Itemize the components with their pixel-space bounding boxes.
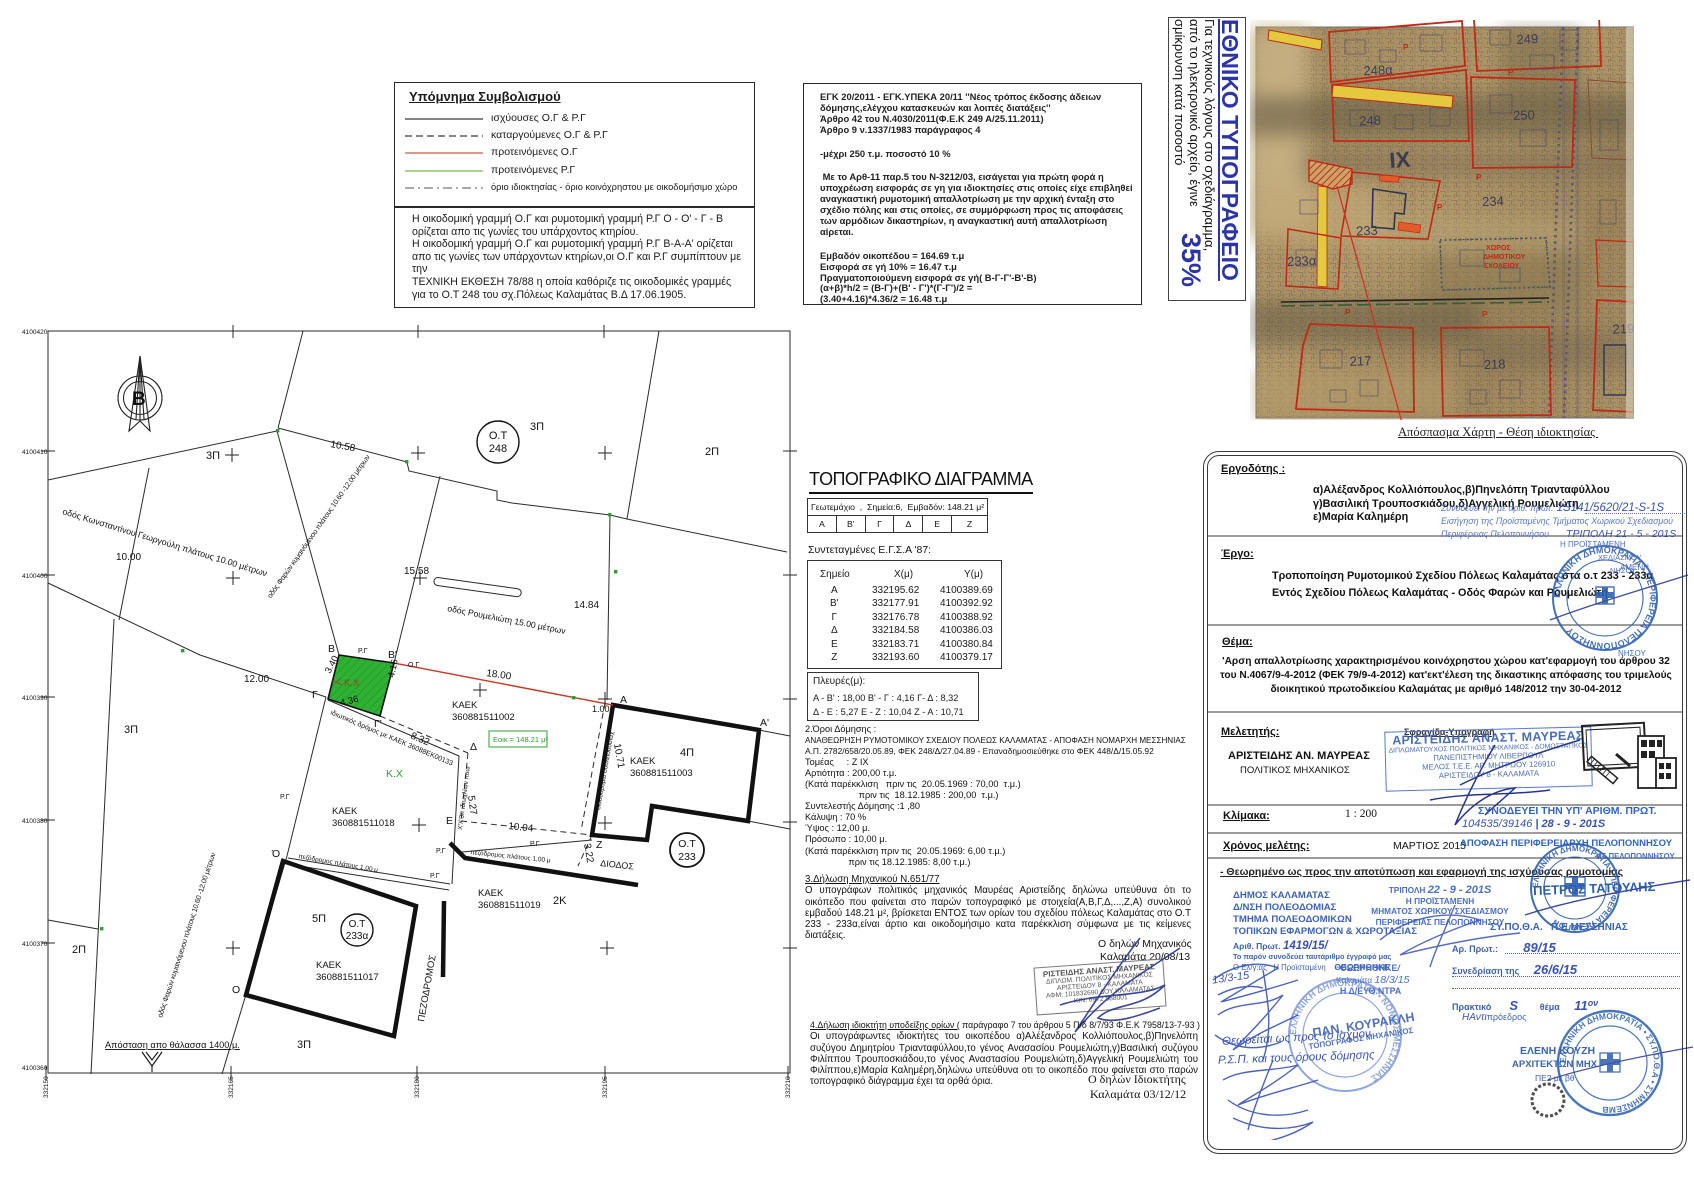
svg-text:15.58: 15.58 bbox=[404, 566, 429, 577]
svg-text:οδός Κωνσταντίνου Γεωργούλη πλ: οδός Κωνσταντίνου Γεωργούλη πλάτους 10.0… bbox=[61, 506, 269, 578]
svg-text:ιδιωτικός δρόμος με ΚΑΕΚ 36088: ιδιωτικός δρόμος με ΚΑΕΚ 36088ΕΚ00133 bbox=[329, 708, 454, 767]
svg-text:4.16: 4.16 bbox=[386, 658, 401, 678]
svg-text:360881511017: 360881511017 bbox=[316, 972, 379, 983]
svg-text:ΚΑΕΚ: ΚΑΕΚ bbox=[452, 700, 478, 711]
svg-text:οδός Φαρών κυμαινόμενου πλάτου: οδός Φαρών κυμαινόμενου πλάτους 10.60 -1… bbox=[265, 453, 372, 600]
svg-text:4100390: 4100390 bbox=[22, 695, 48, 702]
svg-text:18.00: 18.00 bbox=[486, 668, 513, 682]
svg-text:4Π: 4Π bbox=[680, 747, 694, 759]
svg-text:3Π: 3Π bbox=[530, 421, 544, 433]
svg-text:Ό: Ό bbox=[271, 848, 280, 860]
svg-text:Εοικ = 148.21 μ²: Εοικ = 148.21 μ² bbox=[493, 735, 548, 744]
svg-text:ΠΕΖΟΔΡΟΜΟΣ: ΠΕΖΟΔΡΟΜΟΣ bbox=[416, 954, 439, 1022]
svg-text:1.00: 1.00 bbox=[592, 704, 610, 714]
svg-text:234: 234 bbox=[1482, 193, 1504, 209]
svg-text:Γ: Γ bbox=[312, 689, 318, 701]
svg-text:ΧΩΡΟΣ: ΧΩΡΟΣ bbox=[1486, 245, 1511, 252]
svg-text:3.22: 3.22 bbox=[581, 843, 595, 865]
svg-text:Ρ.Γ: Ρ.Γ bbox=[358, 648, 368, 655]
svg-text:Ρ.Γ: Ρ.Γ bbox=[280, 794, 290, 801]
svg-text:4100400: 4100400 bbox=[22, 573, 48, 580]
svg-text:233α: 233α bbox=[346, 931, 369, 942]
svg-text:2Κ: 2Κ bbox=[553, 895, 567, 907]
svg-text:οδός Ρουμελιώτη 15.00 μέτρων: οδός Ρουμελιώτη 15.00 μέτρων bbox=[447, 603, 567, 636]
svg-text:332165: 332165 bbox=[228, 1076, 235, 1098]
svg-text:Απόσταση απο θάλασσα 1400 μ.: Απόσταση απο θάλασσα 1400 μ. bbox=[105, 1040, 240, 1050]
svg-text:360881511003: 360881511003 bbox=[630, 768, 693, 779]
svg-text:P: P bbox=[1345, 308, 1351, 317]
svg-text:2Π: 2Π bbox=[705, 446, 719, 458]
svg-text:Ο.Τ: Ο.Τ bbox=[489, 430, 508, 442]
svg-text:332195: 332195 bbox=[602, 1076, 609, 1098]
svg-text:3Π: 3Π bbox=[206, 450, 220, 462]
svg-text:P: P bbox=[1476, 173, 1482, 182]
svg-text:250: 250 bbox=[1513, 107, 1535, 123]
svg-text:Κ.Χ: Κ.Χ bbox=[386, 768, 403, 780]
svg-text:10.04: 10.04 bbox=[508, 821, 534, 835]
svg-text:248α: 248α bbox=[1363, 62, 1393, 78]
svg-text:249: 249 bbox=[1516, 31, 1538, 47]
svg-text:Ο.Γ: Ο.Γ bbox=[408, 662, 419, 669]
svg-text:3Π: 3Π bbox=[124, 724, 138, 736]
svg-text:ΚΑΕΚ: ΚΑΕΚ bbox=[332, 806, 358, 817]
svg-text:4100380: 4100380 bbox=[22, 818, 48, 825]
svg-text:233: 233 bbox=[678, 851, 696, 863]
svg-text:ΚΑΕΚ: ΚΑΕΚ bbox=[316, 960, 342, 971]
svg-text:Ο.Τ: Ο.Τ bbox=[678, 838, 696, 850]
svg-text:360881511019: 360881511019 bbox=[478, 900, 541, 911]
svg-text:ΣΧΟΛΕΙΟΥ: ΣΧΟΛΕΙΟΥ bbox=[1484, 263, 1520, 270]
svg-text:Ε: Ε bbox=[446, 815, 453, 827]
svg-text:4100360: 4100360 bbox=[22, 1065, 48, 1072]
svg-text:Δ: Δ bbox=[470, 741, 477, 753]
svg-text:Α: Α bbox=[620, 694, 627, 706]
svg-text:Ρ.Γ: Ρ.Γ bbox=[530, 841, 540, 848]
svg-text:Ο.Τ: Ο.Τ bbox=[349, 919, 366, 930]
svg-text:3Π: 3Π bbox=[297, 1039, 311, 1051]
svg-text:233α: 233α bbox=[1287, 253, 1317, 269]
svg-text:B: B bbox=[132, 389, 146, 410]
svg-text:Ρ.Γ: Ρ.Γ bbox=[430, 873, 440, 880]
svg-text:233: 233 bbox=[1356, 223, 1378, 239]
svg-text:P: P bbox=[1437, 203, 1443, 212]
svg-text:10.00: 10.00 bbox=[116, 552, 141, 563]
svg-text:ΚΑΕΚ: ΚΑΕΚ bbox=[478, 888, 504, 899]
svg-text:Ο: Ο bbox=[232, 984, 240, 996]
svg-text:332210: 332210 bbox=[785, 1076, 792, 1098]
svg-text:360881511018: 360881511018 bbox=[332, 818, 395, 829]
svg-text:Β': Β' bbox=[388, 649, 397, 661]
svg-text:P: P bbox=[1403, 43, 1409, 52]
svg-text:360881511002: 360881511002 bbox=[452, 712, 515, 723]
svg-text:2Π: 2Π bbox=[72, 944, 86, 956]
svg-text:4100410: 4100410 bbox=[22, 449, 48, 456]
svg-text:332150: 332150 bbox=[43, 1076, 50, 1098]
svg-text:217: 217 bbox=[1349, 353, 1371, 369]
svg-text:332180: 332180 bbox=[414, 1076, 421, 1098]
svg-text:IX: IX bbox=[1389, 147, 1412, 173]
svg-text:ΚΑΕΚ: ΚΑΕΚ bbox=[630, 756, 656, 767]
svg-text:218: 218 bbox=[1484, 356, 1506, 372]
svg-text:Α': Α' bbox=[760, 717, 769, 729]
svg-text:Ρ.Γ: Ρ.Γ bbox=[436, 848, 446, 855]
svg-text:οδός Φαρών κυμαινόμενου πλάτου: οδός Φαρών κυμαινόμενου πλάτους 10.60 -1… bbox=[155, 851, 217, 1019]
svg-text:10.58: 10.58 bbox=[329, 439, 356, 454]
svg-text:5Π: 5Π bbox=[312, 913, 326, 925]
svg-text:4100420: 4100420 bbox=[22, 329, 48, 336]
svg-text:ΔΗΜΟΤΙΚΟΥ: ΔΗΜΟΤΙΚΟΥ bbox=[1483, 254, 1526, 261]
svg-text:ΔΙΟΔΟΣ: ΔΙΟΔΟΣ bbox=[600, 858, 635, 872]
svg-text:14.84: 14.84 bbox=[574, 600, 599, 611]
svg-text:Β: Β bbox=[328, 643, 335, 655]
svg-text:10.71: 10.71 bbox=[611, 743, 626, 770]
svg-text:P: P bbox=[1508, 68, 1514, 77]
svg-text:248: 248 bbox=[489, 443, 507, 455]
svg-text:P: P bbox=[1482, 310, 1488, 319]
svg-text:4100370: 4100370 bbox=[22, 941, 48, 948]
svg-text:Κ.Χ: Κ.Χ bbox=[344, 678, 360, 689]
svg-text:Ζ: Ζ bbox=[596, 839, 603, 851]
svg-text:12.00: 12.00 bbox=[244, 674, 269, 685]
